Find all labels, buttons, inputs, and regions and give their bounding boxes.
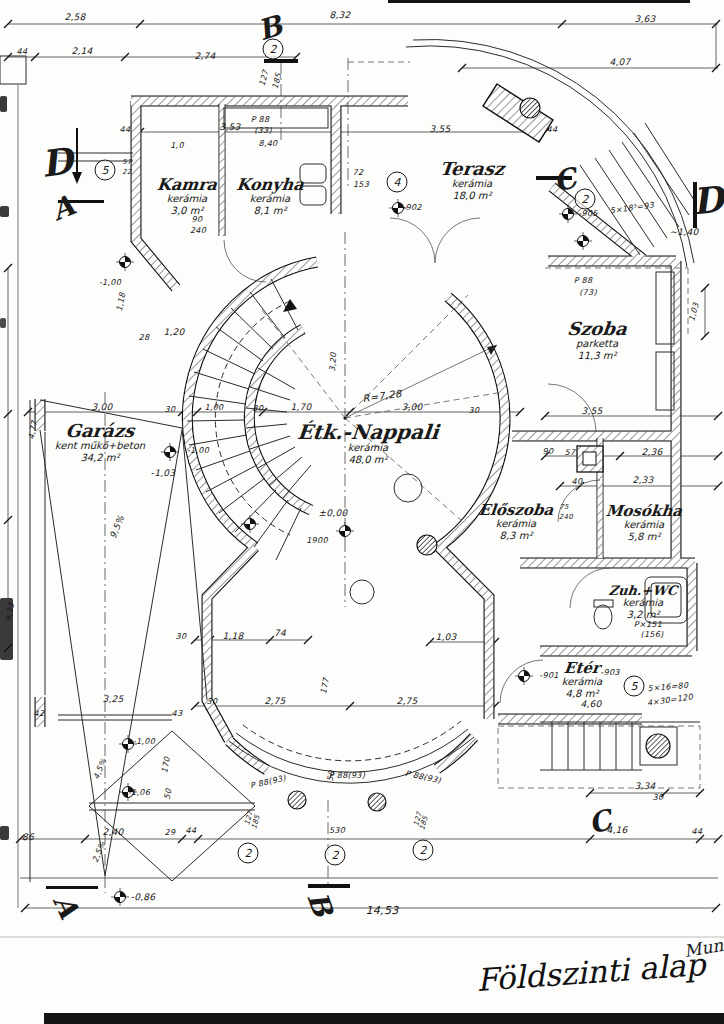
dimension-label: 9,33 bbox=[4, 602, 16, 622]
dimension-label: 30 bbox=[469, 406, 480, 415]
dimension-label: 3,00 bbox=[401, 402, 422, 412]
dimension-label: 1,00 bbox=[204, 403, 223, 412]
dimension-label: P 88(93) bbox=[249, 774, 286, 791]
dimension-label: P×151 bbox=[634, 620, 662, 629]
room-name: Zuh.+WC bbox=[608, 584, 678, 597]
dimension-label: 44 bbox=[547, 125, 558, 134]
dimension-label: 4,07 bbox=[609, 57, 630, 67]
dimension-label: P 88 bbox=[251, 115, 270, 124]
dimension-label: 30 bbox=[165, 405, 176, 414]
dimension-label: 30 bbox=[207, 697, 218, 706]
dimension-label: 4×30=120 bbox=[646, 692, 693, 707]
dimension-label: -902 bbox=[402, 203, 421, 212]
dimension-label: 44 bbox=[692, 827, 703, 836]
dimension-label: 3,25 bbox=[102, 694, 123, 704]
room-material: kerámia bbox=[440, 178, 504, 190]
dimension-label: 2,75 bbox=[264, 696, 285, 706]
dimension-label: 4,77 bbox=[27, 420, 39, 440]
dimension-label: -1,03 bbox=[151, 468, 176, 478]
dimension-label: -1,00 bbox=[187, 446, 209, 455]
dimension-label: 1900 bbox=[306, 536, 328, 545]
room-area: 34,2 m² bbox=[55, 451, 145, 463]
dimension-label: R=7,28 bbox=[362, 388, 403, 404]
dimension-label: 57 bbox=[122, 158, 132, 166]
dimension-label: 9,5% bbox=[108, 514, 126, 540]
dimension-label: 1,03 bbox=[435, 632, 456, 642]
room-name: Etér bbox=[561, 661, 603, 676]
circled-number: 2 bbox=[263, 39, 284, 60]
dimension-label: -1,00 bbox=[99, 278, 121, 287]
section-marker-c: C bbox=[585, 803, 615, 841]
dimension-label: 240 bbox=[559, 513, 573, 521]
dimension-label: -901 bbox=[539, 671, 558, 680]
dimension-label: 86 bbox=[22, 832, 34, 842]
dimension-label: 43 bbox=[172, 709, 183, 718]
dimension-label: 3,34 bbox=[634, 781, 655, 791]
dimension-label: 1,18 bbox=[222, 631, 243, 641]
dimension-label: 2,33 bbox=[632, 475, 653, 485]
dimension-label: -0,86 bbox=[131, 892, 156, 902]
dimension-label: 2,74 bbox=[194, 51, 215, 61]
floorplan-page: 2,588,323,63442,142,744,07127185443,533,… bbox=[0, 0, 724, 1024]
circled-number: 5 bbox=[95, 160, 116, 181]
room-label: Mosókhakerámia5,8 m² bbox=[606, 504, 682, 542]
room-material: kent műkő+beton bbox=[55, 440, 145, 452]
circled-number: 4 bbox=[387, 172, 408, 193]
dimension-label: 3,55 bbox=[429, 124, 450, 134]
circled-number: 5 bbox=[624, 676, 645, 697]
dimension-label: 185 bbox=[271, 72, 284, 90]
section-marker-b: B bbox=[300, 887, 339, 921]
dimension-label: ~1,40 bbox=[669, 227, 698, 237]
room-area: 3,2 m² bbox=[609, 609, 678, 621]
room-name: Kamra bbox=[156, 177, 218, 193]
room-name: Étk.-Nappali bbox=[296, 422, 439, 442]
circled-number: 2 bbox=[575, 189, 596, 210]
dimension-label: 3,55 bbox=[581, 406, 602, 416]
dimension-label: 40 bbox=[572, 477, 583, 486]
dimension-label: P 88(93) bbox=[404, 769, 441, 785]
dimension-label: 14,53 bbox=[366, 904, 399, 917]
room-area: 18,0 m² bbox=[440, 189, 504, 201]
room-area: 4,8 m² bbox=[562, 688, 602, 700]
circled-number: 2 bbox=[413, 840, 434, 861]
dimension-label: 42 bbox=[34, 709, 45, 718]
dimension-label: 1,20 bbox=[163, 327, 184, 337]
dimension-label: 8,40 bbox=[258, 139, 277, 148]
dimension-label: 5×16=80 bbox=[647, 681, 689, 694]
room-label: Kamrakerámia3,0 m² bbox=[157, 177, 217, 216]
room-area: 8,1 m² bbox=[236, 204, 303, 216]
dimension-label: 3,63 bbox=[634, 14, 655, 24]
dimension-label: 44 bbox=[120, 125, 131, 134]
dimension-label: 30 bbox=[653, 793, 664, 802]
dimension-label: 44 bbox=[186, 826, 197, 835]
dimension-label: 240 bbox=[190, 226, 206, 235]
dimension-label: 4,60 bbox=[580, 699, 601, 709]
room-material: kerámia bbox=[479, 518, 553, 530]
dimension-label: 90 bbox=[192, 215, 203, 224]
section-marker-d: D bbox=[39, 139, 76, 185]
section-marker-d: D bbox=[690, 177, 724, 222]
room-name: Szoba bbox=[566, 320, 627, 338]
dimension-label: 153 bbox=[353, 180, 369, 189]
room-name: Mosókha bbox=[605, 504, 683, 519]
room-label: Garázskent műkő+beton34,2 m² bbox=[55, 422, 145, 463]
dimension-label: 1,70 bbox=[290, 402, 311, 412]
dimension-label: P 88 bbox=[574, 276, 593, 285]
room-name: Garázs bbox=[54, 422, 146, 440]
dimension-label: 50 bbox=[326, 770, 337, 782]
room-material: kerámia bbox=[562, 676, 602, 688]
dimension-label: 29 bbox=[165, 828, 176, 837]
room-area: 8,3 m² bbox=[479, 530, 553, 542]
labels-layer: 2,588,323,63442,142,744,07127185443,533,… bbox=[0, 0, 724, 1024]
room-label: Előszobakerámia8,3 m² bbox=[479, 503, 553, 541]
room-area: 3,0 m² bbox=[157, 204, 217, 216]
dimension-label: 2,58 bbox=[64, 12, 85, 22]
dimension-label: 75 bbox=[559, 503, 569, 511]
dimension-label: 1,0 bbox=[170, 141, 184, 150]
room-area: 5,8 m² bbox=[606, 531, 682, 543]
room-name: Terasz bbox=[439, 160, 505, 178]
dimension-label: 30 bbox=[253, 404, 264, 413]
room-label: Zuh.+WCkerámia3,2 m² bbox=[609, 584, 678, 620]
dimension-label: 22 bbox=[122, 168, 132, 176]
dimension-label: 90 bbox=[543, 447, 554, 456]
room-area: 48,0 m² bbox=[298, 453, 439, 465]
room-name: Konyha bbox=[236, 177, 305, 193]
room-name: Előszoba bbox=[478, 503, 554, 518]
section-marker-a: A bbox=[46, 889, 85, 923]
dimension-label: 5×18⁵=93 bbox=[609, 200, 654, 215]
room-material: kerámia bbox=[236, 193, 303, 205]
dimension-label: 177 bbox=[319, 677, 331, 694]
room-material: kerámia bbox=[609, 597, 678, 609]
dimension-label: 2,40 bbox=[102, 827, 123, 837]
room-label: Teraszkerámia18,0 m² bbox=[440, 160, 504, 201]
dimension-label: 50 bbox=[163, 788, 174, 800]
dimension-label: (73) bbox=[579, 288, 597, 297]
dimension-label: (156) bbox=[640, 630, 663, 639]
dimension-label: 530 bbox=[329, 826, 345, 835]
room-label: Szobaparketta11,3 m² bbox=[567, 320, 626, 361]
room-label: Etérkerámia4,8 m² bbox=[562, 661, 602, 699]
dimension-label: 8,32 bbox=[329, 10, 350, 20]
dimension-label: -1,06 bbox=[128, 788, 150, 797]
dimension-label: 1,03 bbox=[687, 302, 701, 323]
dimension-label: 127 bbox=[258, 69, 271, 87]
dimension-label: 57 bbox=[565, 448, 576, 457]
section-marker-a: A bbox=[47, 189, 80, 228]
dimension-label: 4,5% bbox=[92, 757, 108, 780]
room-label: Konyhakerámia8,1 m² bbox=[236, 177, 303, 216]
circled-number: 2 bbox=[325, 845, 346, 866]
dimension-label: 3,20 bbox=[328, 352, 339, 372]
dimension-label: 3,53 bbox=[219, 122, 240, 132]
dimension-label: 72 bbox=[353, 168, 364, 177]
dimension-label: ±0,00 bbox=[318, 508, 347, 518]
dimension-label: 74 bbox=[274, 628, 286, 638]
dimension-label: 28 bbox=[139, 333, 150, 342]
circled-number: 2 bbox=[238, 843, 259, 864]
dimension-label: (33) bbox=[254, 126, 272, 135]
room-material: kerámia bbox=[157, 193, 217, 205]
dimension-label: 30 bbox=[176, 632, 187, 641]
dimension-label: 3,00 bbox=[91, 402, 112, 412]
room-area: 11,3 m² bbox=[567, 349, 626, 361]
dimension-label: 44 bbox=[17, 47, 28, 56]
dimension-label: -905 bbox=[578, 209, 597, 218]
dimension-label: 2,14 bbox=[71, 46, 92, 56]
room-material: parketta bbox=[567, 338, 626, 350]
dimension-label: 2,5% bbox=[91, 840, 107, 863]
dimension-label: 2,75 bbox=[396, 696, 417, 706]
dimension-label: 170 bbox=[160, 756, 172, 773]
dimension-label: -903 bbox=[600, 668, 619, 677]
room-label: Étk.-Nappalikerámia48,0 m² bbox=[298, 422, 439, 465]
dimension-label: -1,00 bbox=[133, 737, 155, 746]
room-material: kerámia bbox=[606, 519, 682, 531]
dimension-label: 1,18 bbox=[115, 292, 127, 312]
dimension-label: 2,36 bbox=[641, 447, 662, 457]
